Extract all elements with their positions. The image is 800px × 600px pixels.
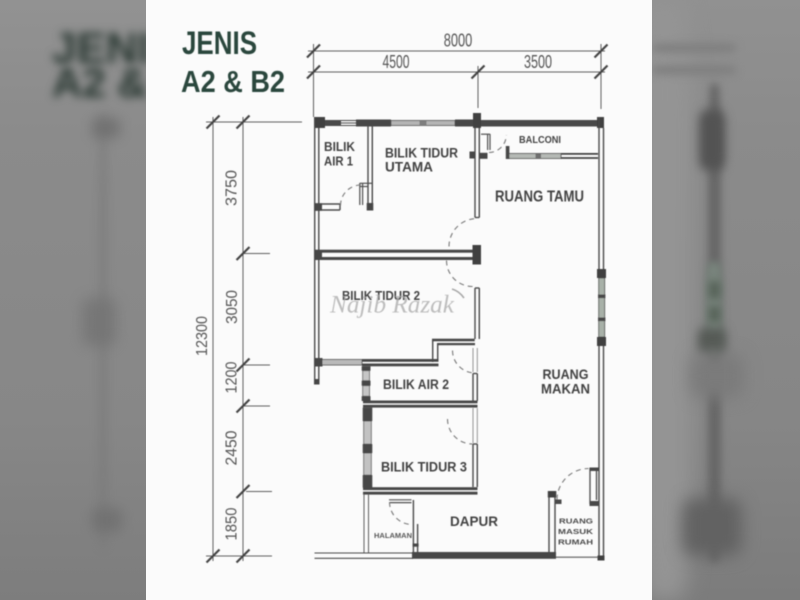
svg-text:BILIK TIDUR: BILIK TIDUR: [385, 146, 458, 161]
svg-text:3750: 3750: [224, 170, 241, 206]
svg-text:Najib Razak: Najib Razak: [329, 292, 455, 319]
svg-text:BILIK AIR 2: BILIK AIR 2: [383, 377, 449, 392]
svg-text:4500: 4500: [383, 52, 410, 72]
svg-text:1200: 1200: [224, 361, 241, 393]
svg-text:8000: 8000: [444, 31, 473, 51]
svg-text:3500: 3500: [524, 52, 552, 72]
svg-text:MAKAN: MAKAN: [541, 381, 590, 397]
svg-text:BILIK TIDUR 3: BILIK TIDUR 3: [381, 460, 467, 475]
svg-text:AIR 1: AIR 1: [324, 155, 353, 169]
svg-text:RUMAH: RUMAH: [558, 538, 593, 547]
svg-text:UTAMA: UTAMA: [385, 160, 433, 175]
svg-text:2450: 2450: [224, 430, 241, 465]
svg-text:BALCONI: BALCONI: [519, 135, 561, 146]
svg-text:BILIK: BILIK: [324, 140, 355, 154]
svg-text:MASUK: MASUK: [558, 527, 594, 536]
svg-text:HALAMAN: HALAMAN: [374, 533, 412, 540]
svg-text:DAPUR: DAPUR: [450, 513, 498, 529]
svg-text:RUANG TAMU: RUANG TAMU: [495, 189, 584, 206]
svg-text:3050: 3050: [224, 290, 241, 324]
svg-text:JENIS: JENIS: [182, 25, 257, 61]
svg-text:12300: 12300: [194, 316, 211, 356]
svg-text:RUANG: RUANG: [559, 517, 593, 526]
svg-text:1850: 1850: [224, 507, 241, 540]
svg-text:A2 & B2: A2 & B2: [181, 64, 285, 99]
